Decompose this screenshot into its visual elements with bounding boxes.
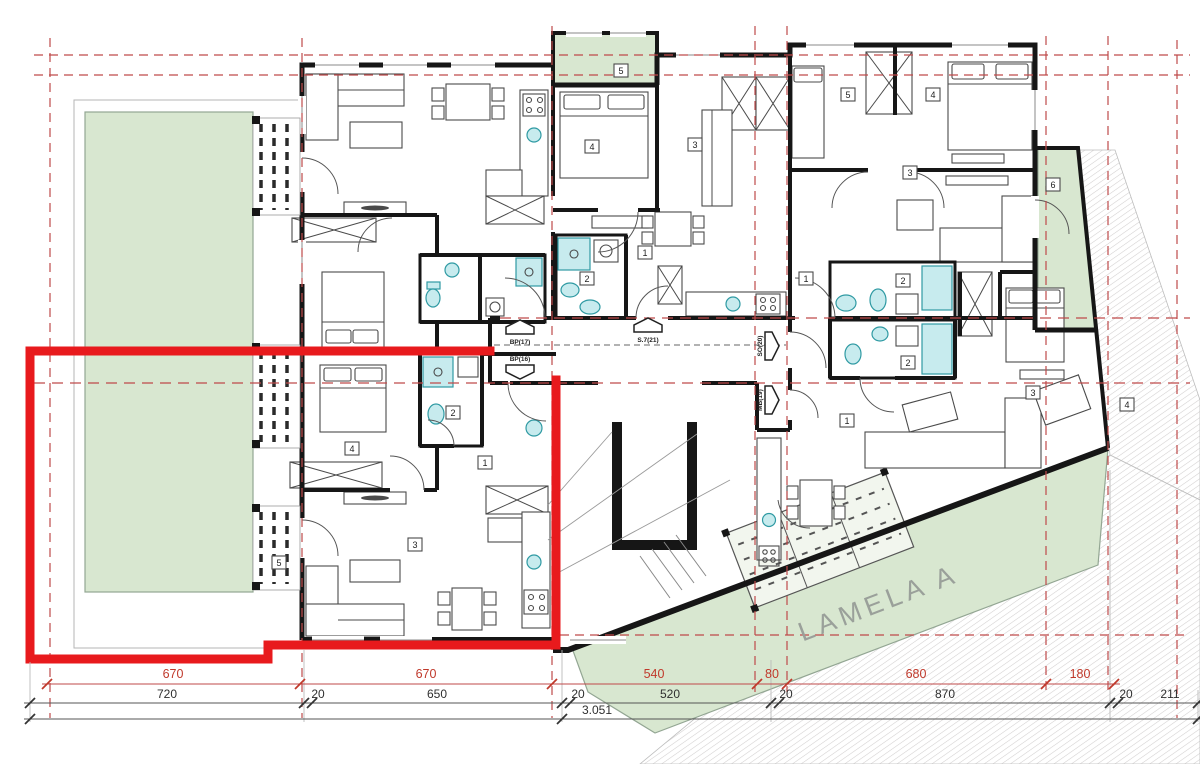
room-tag: 3 — [1026, 386, 1040, 399]
toilet — [427, 282, 440, 289]
room-tag: 5 — [841, 88, 855, 101]
chair — [432, 106, 444, 119]
sink — [872, 327, 888, 341]
room-tag: 4 — [585, 140, 599, 153]
dining-table — [655, 212, 691, 246]
sofa — [306, 74, 338, 140]
room-number: 3 — [692, 140, 697, 150]
entrance-label: BP(17) — [510, 339, 531, 346]
sink — [763, 514, 776, 527]
chair — [787, 506, 798, 519]
dim-red: 540 — [644, 667, 665, 681]
sink — [526, 420, 542, 436]
chair — [492, 106, 504, 119]
chair — [693, 232, 704, 244]
coffee-table — [350, 560, 400, 582]
room-number: 1 — [482, 458, 487, 468]
room-tag: 3 — [408, 538, 422, 551]
sink — [445, 263, 459, 277]
kitchen-counter — [522, 512, 550, 628]
chair — [834, 486, 845, 499]
chair — [438, 612, 450, 625]
floor-plan-canvas: 5 4 3 2 1 5 4 3 2 1 6 2 3 1 4 4 2 1 3 5 … — [0, 0, 1200, 764]
room-tag: 2 — [901, 356, 915, 369]
dim-red: 670 — [416, 667, 437, 681]
dresser — [592, 216, 648, 228]
room-number: 6 — [1050, 180, 1055, 190]
room-tag: 3 — [688, 138, 702, 151]
tv-board — [946, 176, 1008, 185]
toilet — [426, 289, 440, 307]
room-tag: 2 — [580, 272, 594, 285]
room-tag: 4 — [1120, 398, 1134, 411]
bed — [948, 62, 1032, 150]
floor-plan-page: 5 4 3 2 1 5 4 3 2 1 6 2 3 1 4 4 2 1 3 5 … — [0, 0, 1200, 764]
chair — [642, 232, 653, 244]
room-number: 4 — [1124, 400, 1129, 410]
entrance-label: BP(16) — [510, 356, 531, 363]
chair — [834, 506, 845, 519]
dim-red: 670 — [163, 667, 184, 681]
dining-table — [452, 588, 482, 630]
sink — [836, 295, 856, 311]
washing-machine — [458, 357, 478, 377]
sink — [527, 555, 541, 569]
dim-black: 20 — [571, 687, 585, 701]
entrance-label: MB(19) — [757, 389, 764, 411]
coffee-table — [350, 122, 402, 148]
room-tag: 1 — [840, 414, 854, 427]
room-number: 3 — [1030, 388, 1035, 398]
bed — [792, 66, 824, 158]
room-number: 2 — [450, 408, 455, 418]
room-number: 1 — [844, 416, 849, 426]
room-number: 5 — [618, 66, 623, 76]
railing — [252, 504, 300, 590]
room-tag: 1 — [638, 246, 652, 259]
room-tag: 4 — [926, 88, 940, 101]
bed — [320, 365, 386, 432]
dresser — [952, 154, 1004, 163]
toilet — [561, 283, 579, 297]
entrance-label: SO(20) — [757, 336, 764, 357]
dim-black: 720 — [157, 687, 177, 701]
shower — [922, 324, 952, 374]
chair — [438, 592, 450, 605]
room-tag: 6 — [1046, 178, 1060, 191]
sofa — [702, 110, 732, 206]
kitchen-counter — [520, 90, 548, 196]
room-tag: 2 — [446, 406, 460, 419]
washing-machine — [896, 326, 918, 346]
room-number: 5 — [845, 90, 850, 100]
room-number: 1 — [803, 274, 808, 284]
washing-machine — [486, 298, 504, 316]
sink — [527, 128, 541, 142]
room-number: 3 — [907, 168, 912, 178]
railing — [252, 343, 300, 448]
dim-red: 680 — [906, 667, 927, 681]
shower — [516, 258, 542, 286]
room-number: 5 — [276, 558, 281, 568]
room-tag: 2 — [896, 274, 910, 287]
room-tag: 4 — [345, 442, 359, 455]
dim-black: 870 — [935, 687, 955, 701]
room-number: 2 — [584, 274, 589, 284]
wardrobe — [866, 52, 912, 114]
washing-machine — [896, 294, 918, 314]
cabinet — [486, 170, 522, 196]
toilet — [870, 289, 886, 311]
shower — [922, 266, 952, 310]
chair — [432, 88, 444, 101]
chair — [642, 216, 653, 228]
dining-table — [800, 480, 832, 526]
dim-black: 520 — [660, 687, 680, 701]
wardrobe — [486, 486, 548, 514]
sink — [580, 300, 600, 314]
room-number: 4 — [349, 444, 354, 454]
chair — [484, 592, 496, 605]
dresser — [1020, 370, 1064, 379]
sink — [726, 297, 740, 311]
chair — [693, 216, 704, 228]
room-number: 1 — [642, 248, 647, 258]
dim-black: 650 — [427, 687, 447, 701]
chair — [492, 88, 504, 101]
wardrobe — [486, 196, 544, 224]
chair — [787, 486, 798, 499]
coffee-table — [897, 200, 933, 230]
balcony-b — [553, 33, 657, 85]
dim-red: 180 — [1070, 667, 1091, 681]
bed — [322, 272, 384, 348]
room-number: 3 — [412, 540, 417, 550]
dim-black: 20 — [1119, 687, 1133, 701]
sofa — [865, 432, 1005, 468]
kitchen-counter — [757, 438, 781, 560]
dim-black: 211 — [1160, 687, 1179, 701]
wardrobe — [658, 266, 682, 304]
shower — [558, 238, 590, 270]
sofa — [1002, 196, 1034, 262]
railing — [252, 116, 300, 216]
room-number: 2 — [905, 358, 910, 368]
room-tag: 3 — [903, 166, 917, 179]
dim-total: 3.051 — [582, 703, 612, 717]
room-number: 2 — [900, 276, 905, 286]
toilet — [845, 344, 861, 364]
entrance-label: S.7(21) — [637, 337, 658, 344]
sofa — [1005, 398, 1041, 468]
dim-red: 80 — [765, 667, 779, 681]
dim-black: 20 — [311, 687, 325, 701]
room-tag: 1 — [799, 272, 813, 285]
room-tag: 5 — [614, 64, 628, 77]
room-number: 4 — [589, 142, 594, 152]
dining-table — [446, 84, 490, 120]
cabinet — [488, 518, 522, 542]
room-tag: 1 — [478, 456, 492, 469]
bed — [560, 92, 648, 178]
wardrobe — [292, 218, 376, 242]
room-number: 4 — [930, 90, 935, 100]
dim-black: 20 — [779, 687, 793, 701]
chair — [484, 612, 496, 625]
wardrobe — [958, 272, 992, 336]
room-tag: 5 — [272, 556, 286, 569]
